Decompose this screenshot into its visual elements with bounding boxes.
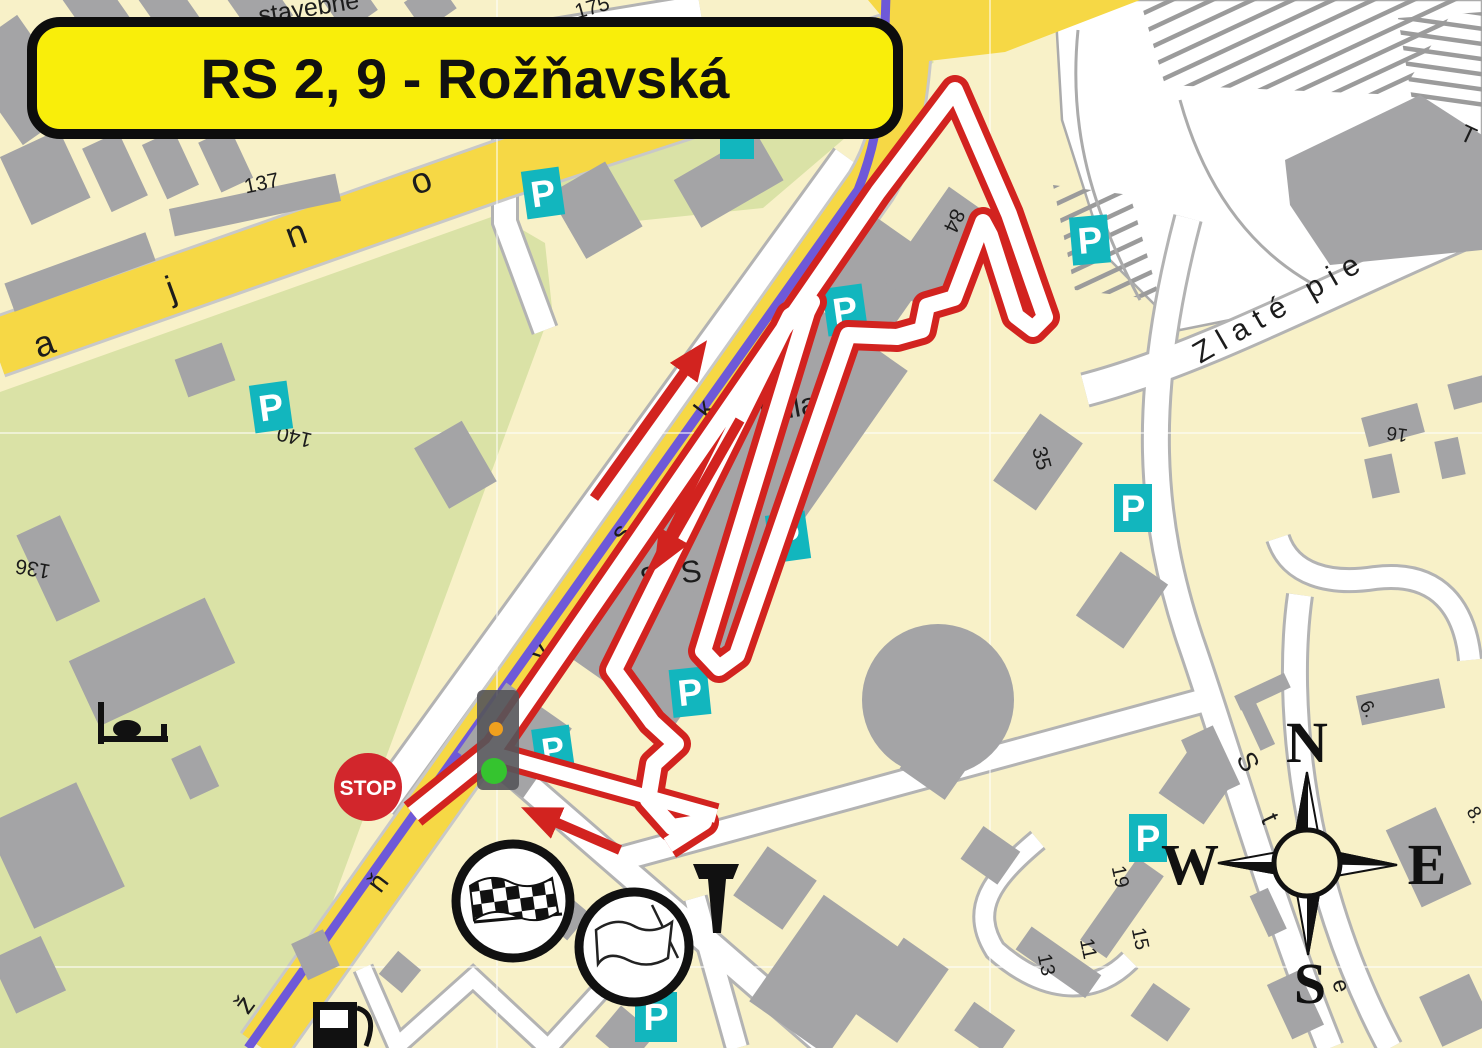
svg-text:P: P <box>1136 818 1161 859</box>
start-flag-icon <box>579 892 689 1002</box>
stop-sign: STOP <box>334 753 402 821</box>
compass-south: S <box>1294 951 1326 1016</box>
parking-icon: P <box>521 167 565 220</box>
parking-icon-partial <box>720 137 754 159</box>
traffic-light-green <box>481 758 507 784</box>
traffic-light-icon <box>477 690 519 790</box>
compass-east: E <box>1408 832 1447 897</box>
finish-flag-icon <box>456 844 570 958</box>
house-number: 15 <box>1127 926 1153 952</box>
compass-north: N <box>1286 710 1328 775</box>
svg-text:P: P <box>1121 488 1146 529</box>
map-canvas: stavebné 175 137 140 136 84 35 16 19 15 … <box>0 0 1482 1048</box>
house-number: 16 <box>1385 422 1409 446</box>
parking-icon: P <box>1069 214 1111 265</box>
svg-text:STOP: STOP <box>340 777 397 800</box>
parking-icon: P <box>249 381 293 434</box>
stage-title: RS 2, 9 - Rožňavská <box>200 47 730 110</box>
stage-title-banner: RS 2, 9 - Rožňavská <box>32 22 898 134</box>
svg-text:P: P <box>676 671 705 714</box>
parking-icon: P <box>1114 484 1152 532</box>
compass-west: W <box>1161 832 1219 897</box>
house-number: 13 <box>1033 952 1059 978</box>
house-number: 19 <box>1107 864 1133 890</box>
rally-stage-map: stavebné 175 137 140 136 84 35 16 19 15 … <box>0 0 1482 1048</box>
svg-text:P: P <box>1076 219 1104 262</box>
traffic-light-amber <box>489 722 503 736</box>
